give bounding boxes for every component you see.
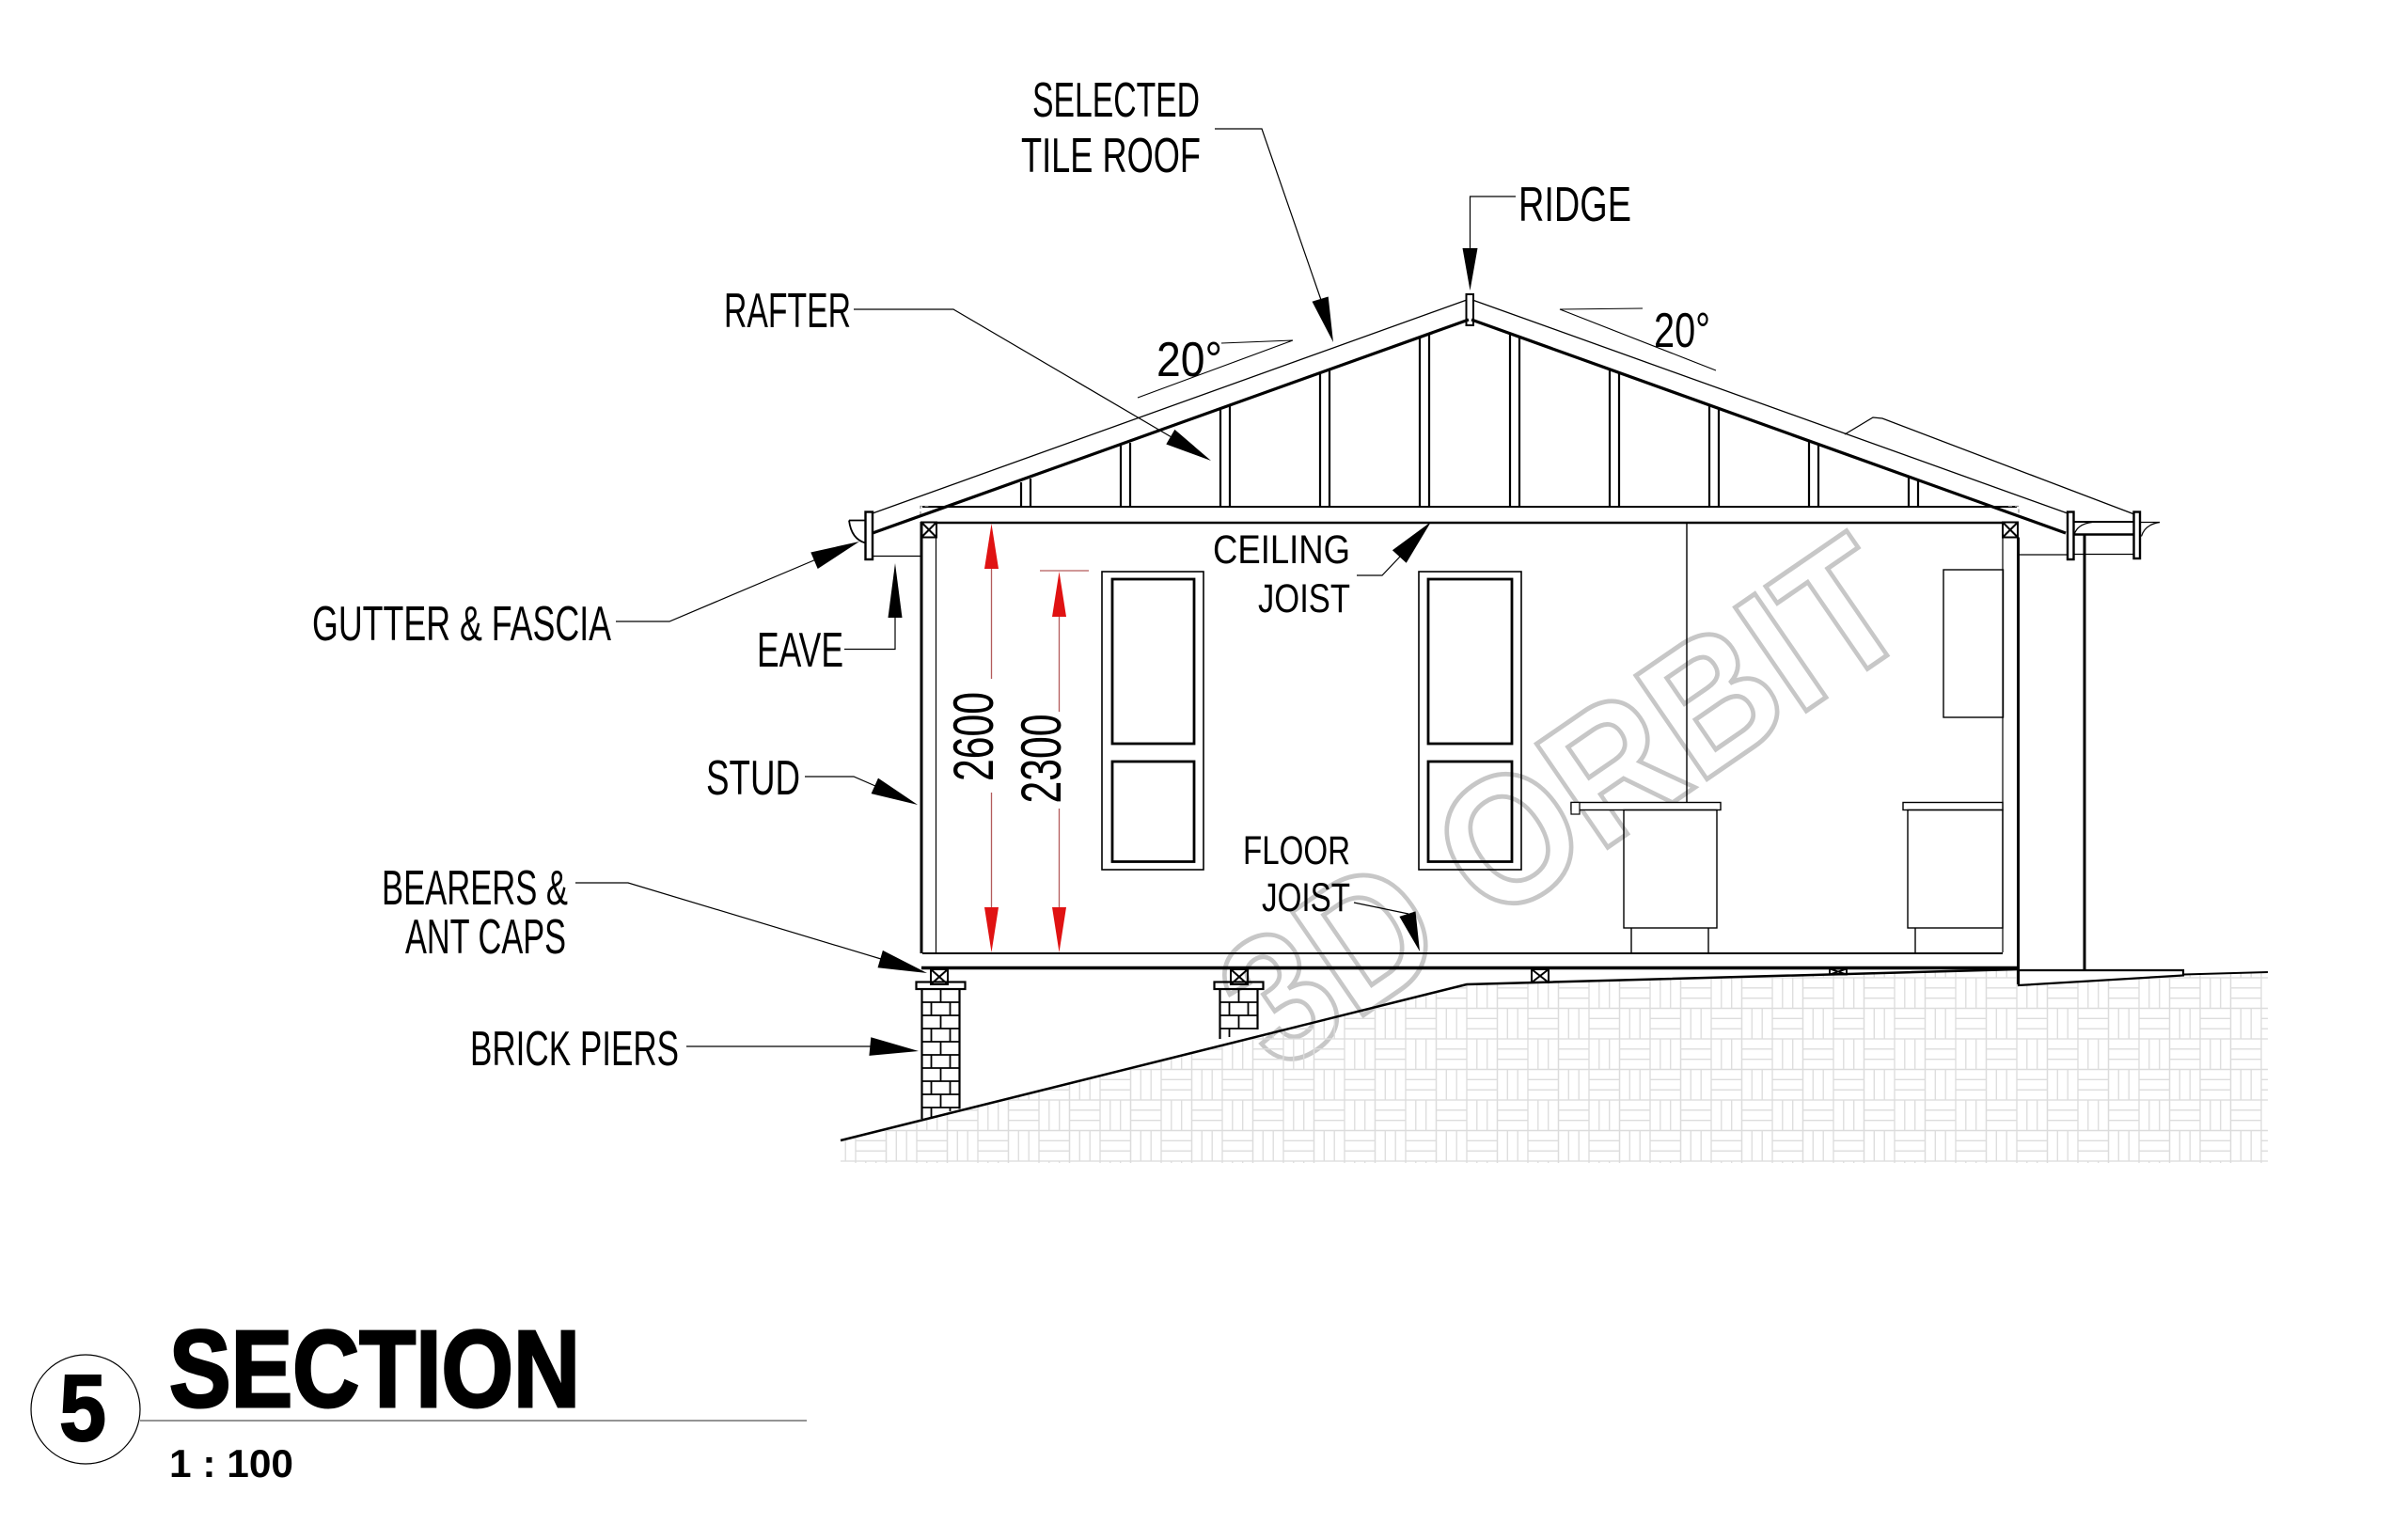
svg-text:2300: 2300 (1010, 715, 1073, 804)
svg-text:BRICK PIERS: BRICK PIERS (470, 1022, 679, 1076)
svg-text:STUD: STUD (706, 751, 800, 806)
svg-text:JOIST: JOIST (1262, 875, 1350, 920)
svg-text:RAFTER: RAFTER (724, 284, 851, 338)
svg-text:GUTTER & FASCIA: GUTTER & FASCIA (312, 597, 611, 652)
svg-text:RIDGE: RIDGE (1518, 178, 1631, 232)
svg-text:20°: 20° (1654, 304, 1710, 358)
svg-text:BEARERS &: BEARERS & (382, 861, 568, 916)
svg-text:JOIST: JOIST (1258, 576, 1350, 621)
svg-text:EAVE: EAVE (757, 623, 843, 678)
svg-text:ANT CAPS: ANT CAPS (405, 910, 566, 965)
svg-text:TILE ROOF: TILE ROOF (1021, 129, 1201, 183)
svg-text:CEILING: CEILING (1213, 527, 1350, 573)
svg-text:1 : 100: 1 : 100 (169, 1441, 293, 1485)
svg-text:SECTION: SECTION (169, 1308, 580, 1430)
svg-text:5: 5 (59, 1356, 106, 1461)
svg-text:SELECTED: SELECTED (1032, 73, 1200, 128)
svg-text:2600: 2600 (942, 692, 1005, 781)
svg-text:20°: 20° (1156, 333, 1222, 387)
svg-text:FLOOR: FLOOR (1243, 828, 1350, 873)
